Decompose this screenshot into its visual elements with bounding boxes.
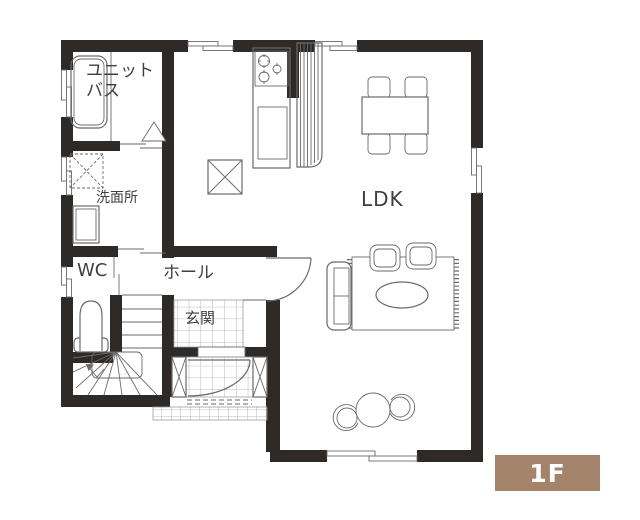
- stove-icon: [255, 51, 288, 86]
- toilet-icon: [74, 301, 108, 352]
- floorplan-page: ユニット バス 洗面所 WC ホール 玄関 LDK 1F: [0, 0, 640, 520]
- label-entrance: 玄関: [185, 310, 215, 327]
- dining-chair-icon: [405, 133, 427, 154]
- hall-ldk-door-icon: [266, 258, 311, 301]
- dining-set: [362, 77, 428, 154]
- post-left-icon: [172, 357, 186, 397]
- dining-chair-icon: [368, 133, 390, 154]
- washing-machine-space-icon: [70, 154, 103, 188]
- window-bottom-icon: [327, 451, 417, 461]
- label-ldk: LDK: [361, 188, 404, 211]
- dining-chair-icon: [405, 77, 427, 98]
- sofa-icon: [327, 262, 351, 330]
- kitchen: [208, 43, 322, 194]
- entrance-step: [198, 347, 245, 357]
- label-hall: ホール: [163, 264, 214, 284]
- wc-door-icon: [114, 257, 119, 295]
- label-washroom: 洗面所: [96, 190, 138, 206]
- window-left-bath-icon: [62, 70, 72, 117]
- living-area: [327, 243, 457, 431]
- floor-hatch-icon: [208, 160, 242, 194]
- porch-tiles: [153, 407, 267, 420]
- label-unit-bath: ユニット バス: [86, 62, 154, 101]
- dining-chair-icon: [368, 77, 390, 98]
- living-table-icon: [376, 282, 428, 308]
- window-left-wc-icon: [62, 267, 72, 297]
- bath-sliding-door-icon: [120, 144, 162, 148]
- kitchen-counter: [253, 48, 290, 168]
- label-wc: WC: [77, 261, 107, 282]
- floor-cushion-icon: [406, 243, 436, 269]
- floor-cushion-icon: [370, 245, 400, 271]
- kitchen-sink-icon: [258, 107, 287, 159]
- refrigerator-cabinet-icon: [297, 43, 322, 167]
- washroom-sliding-door-icon: [118, 249, 166, 253]
- floor-badge: 1F: [495, 455, 600, 491]
- entrance-threshold-dashes: [187, 400, 252, 404]
- post-right-icon: [253, 357, 267, 397]
- window-top-left-icon: [188, 42, 233, 51]
- window-right-icon: [472, 148, 482, 193]
- dining-table-icon: [362, 97, 428, 134]
- round-table-set-icon: [333, 393, 415, 431]
- vanity-sink-icon: [73, 206, 99, 243]
